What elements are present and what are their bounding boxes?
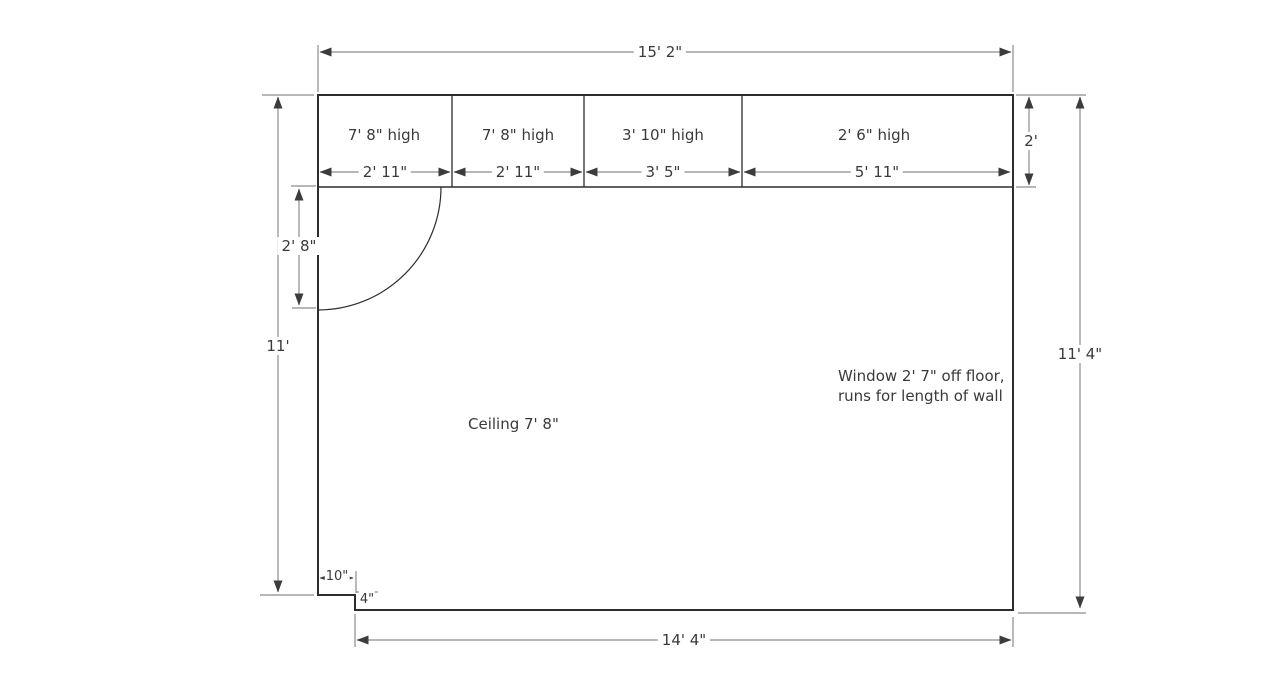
dim-label-bottom-width: 14' 4" (658, 631, 710, 649)
floor-plan-canvas: 15' 2" 7' 8" high 7' 8" high 3' 10" high… (0, 0, 1276, 678)
cabinet-2-width-label: 2' 11" (492, 163, 544, 181)
door-swing-arc (318, 187, 441, 310)
cabinet-4-height-label: 2' 6" high (834, 126, 914, 144)
dim-label-left-height: 11' (262, 337, 293, 355)
ceiling-height-note: Ceiling 7' 8" (468, 414, 559, 434)
cabinet-1-width-label: 2' 11" (359, 163, 411, 181)
window-note-line-2: runs for length of wall (838, 386, 1003, 406)
cabinet-4-width-label: 5' 11" (851, 163, 903, 181)
dim-label-right-height: 11' 4" (1054, 345, 1106, 363)
cabinet-3-height-label: 3' 10" high (618, 126, 708, 144)
floor-plan-drawing (0, 0, 1276, 678)
cabinet-2-height-label: 7' 8" high (478, 126, 558, 144)
dim-label-door-opening: 2' 8" (278, 237, 321, 255)
cabinet-1-height-label: 7' 8" high (344, 126, 424, 144)
dim-label-notch-height: 4" (359, 591, 375, 609)
dim-label-right-top: 2' (1020, 132, 1042, 150)
dim-label-top-width: 15' 2" (634, 43, 686, 61)
window-note-line-1: Window 2' 7" off floor, (838, 366, 1005, 386)
dim-label-notch-width: 10" (325, 568, 350, 586)
cabinet-3-width-label: 3' 5" (642, 163, 685, 181)
